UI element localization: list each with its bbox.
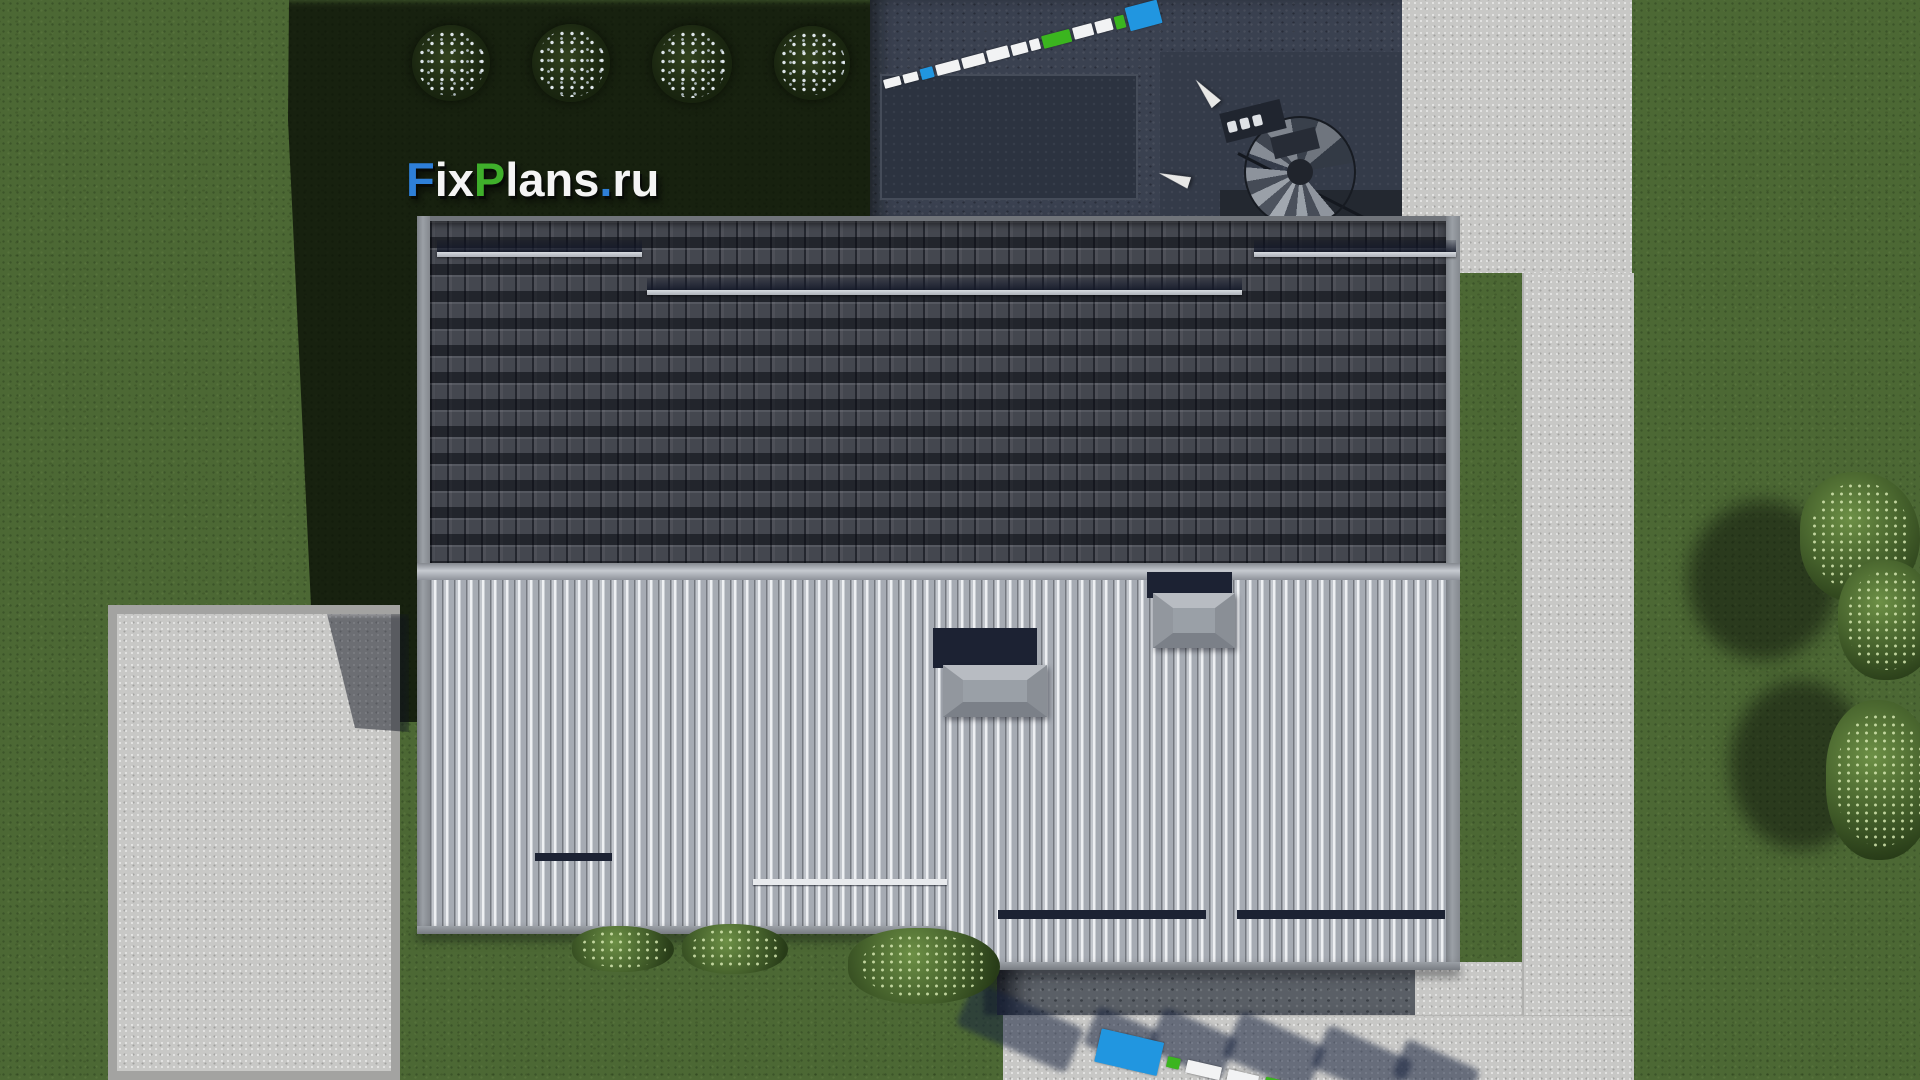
eave-trim <box>753 879 947 885</box>
logo-watermark: FixPlans.ru <box>406 152 659 207</box>
stick-segment <box>935 59 961 76</box>
garden-bush <box>572 926 674 972</box>
stick-segment <box>1226 1069 1259 1080</box>
stick-segment <box>1113 14 1126 29</box>
logo-part: P <box>474 153 505 206</box>
pergola-roof <box>880 74 1138 200</box>
tree-canopy <box>1838 560 1920 680</box>
roof-fascia-right <box>1446 216 1460 966</box>
garden-bush <box>682 924 788 974</box>
stick-segment <box>986 45 1010 62</box>
stick-segment <box>961 52 986 69</box>
roof-dormer-cap <box>1153 593 1235 648</box>
garden-bush <box>848 928 1000 1004</box>
bench-pillow <box>1239 117 1250 130</box>
dormer-shadow <box>933 628 1037 668</box>
tree-canopy <box>1826 700 1920 860</box>
aerial-roof-plan-scene: FixPlans.ru <box>0 0 1920 1080</box>
stick-segment <box>1029 38 1041 51</box>
stick-segment <box>1010 41 1028 56</box>
stick-segment <box>902 71 919 84</box>
logo-part: lans <box>505 153 599 206</box>
roof-ridge <box>417 563 1460 580</box>
eave-gutter-right <box>945 962 1460 970</box>
bench-pillow <box>1226 120 1237 133</box>
logo-part: . <box>599 153 612 206</box>
logo-part: ru <box>612 153 659 206</box>
snow-rail-shadow <box>1254 240 1456 252</box>
eave-vent <box>998 910 1206 919</box>
stick-segment <box>1041 28 1072 48</box>
flowering-shrub <box>532 24 610 102</box>
stick-segment <box>1185 1059 1222 1080</box>
snow-rail <box>1254 252 1456 257</box>
house-roof <box>417 216 1460 966</box>
eave-vent <box>1237 910 1445 919</box>
stick-segment <box>1094 18 1114 34</box>
eave-vent <box>535 853 612 861</box>
logo-part: F <box>406 153 435 206</box>
patio-terrace <box>870 0 1402 220</box>
snow-rail <box>647 290 1242 295</box>
roof-dark-slope <box>430 221 1446 563</box>
flowering-shrub <box>412 25 490 101</box>
flowering-shrub <box>652 25 732 103</box>
driveway-pad-shadow <box>117 614 409 1080</box>
eave-gutter-left <box>417 926 945 934</box>
snow-rail-shadow <box>647 278 1242 290</box>
stick-segment <box>883 75 902 88</box>
driveway-pad <box>108 605 400 1080</box>
roof-dormer-cap <box>943 665 1047 717</box>
snow-rail-shadow <box>437 240 642 252</box>
stick-segment <box>1166 1056 1181 1070</box>
logo-part: ix <box>435 153 474 206</box>
roof-light-slope-left <box>430 580 945 926</box>
stick-segment <box>919 66 934 80</box>
stick-segment <box>1263 1076 1319 1080</box>
bench-pillow <box>1252 113 1263 126</box>
snow-rail <box>437 252 642 257</box>
concrete-path-right <box>1522 273 1634 1080</box>
stick-segment <box>1072 23 1094 40</box>
flowering-shrub <box>774 26 850 100</box>
